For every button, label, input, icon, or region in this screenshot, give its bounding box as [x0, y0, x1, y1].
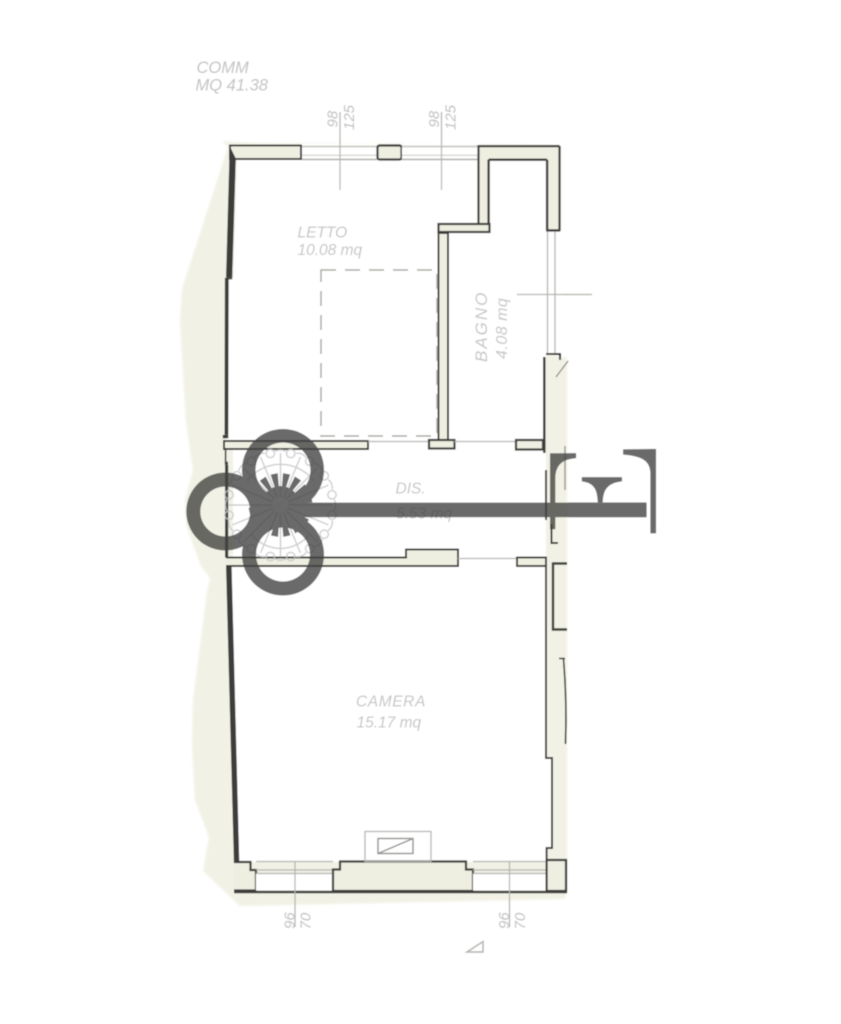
svg-text:15.17 mq: 15.17 mq [357, 715, 422, 732]
svg-text:125: 125 [341, 104, 358, 130]
svg-text:CAMERA: CAMERA [356, 694, 426, 711]
svg-text:MQ 41.38: MQ 41.38 [196, 77, 269, 95]
svg-text:70: 70 [512, 912, 529, 929]
svg-text:COMM: COMM [197, 59, 249, 77]
svg-text:10.08 mq: 10.08 mq [298, 242, 363, 259]
svg-text:LETTO: LETTO [298, 225, 348, 242]
svg-text:96: 96 [282, 912, 299, 929]
svg-text:4.08 mq: 4.08 mq [494, 298, 511, 359]
svg-text:BAGNO: BAGNO [472, 291, 491, 362]
svg-text:125: 125 [443, 104, 460, 130]
svg-text:DIS.: DIS. [396, 481, 426, 498]
svg-text:98: 98 [426, 110, 443, 127]
svg-text:70: 70 [298, 912, 315, 929]
svg-text:96: 96 [496, 912, 513, 929]
svg-text:98: 98 [325, 110, 342, 127]
